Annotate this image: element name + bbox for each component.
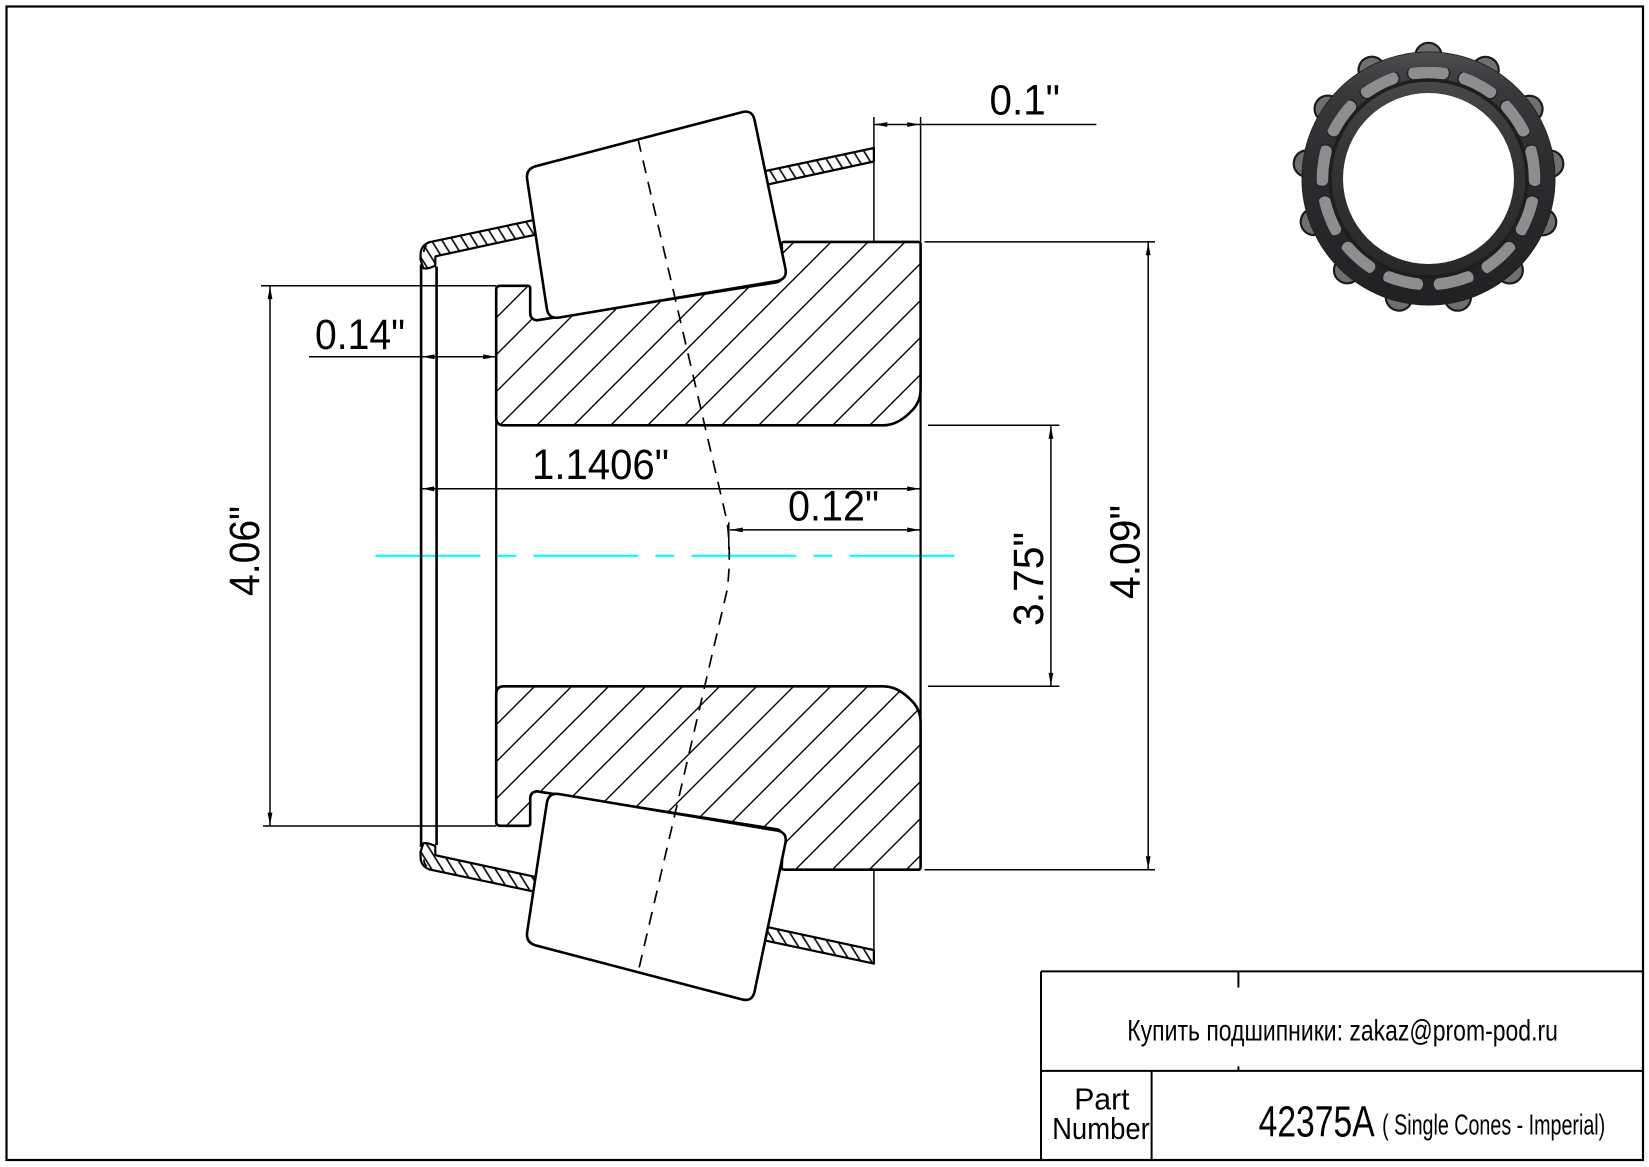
svg-text:3.75": 3.75" — [1005, 532, 1053, 626]
svg-text:0.1": 0.1" — [990, 77, 1061, 125]
svg-text:0.12": 0.12" — [788, 482, 879, 530]
svg-text:4.09": 4.09" — [1102, 505, 1150, 599]
svg-text:0.14": 0.14" — [315, 311, 405, 359]
svg-text:Купить подшипники: zakaz@prom-: Купить подшипники: zakaz@prom-pod.ru — [1127, 1014, 1558, 1047]
svg-text:( Single Cones - Imperial): ( Single Cones - Imperial) — [1382, 1109, 1605, 1141]
svg-text:1.1406": 1.1406" — [532, 441, 669, 489]
svg-text:4.06": 4.06" — [221, 506, 269, 596]
svg-text:42375A: 42375A — [1259, 1098, 1376, 1147]
svg-text:Number: Number — [1052, 1111, 1150, 1146]
